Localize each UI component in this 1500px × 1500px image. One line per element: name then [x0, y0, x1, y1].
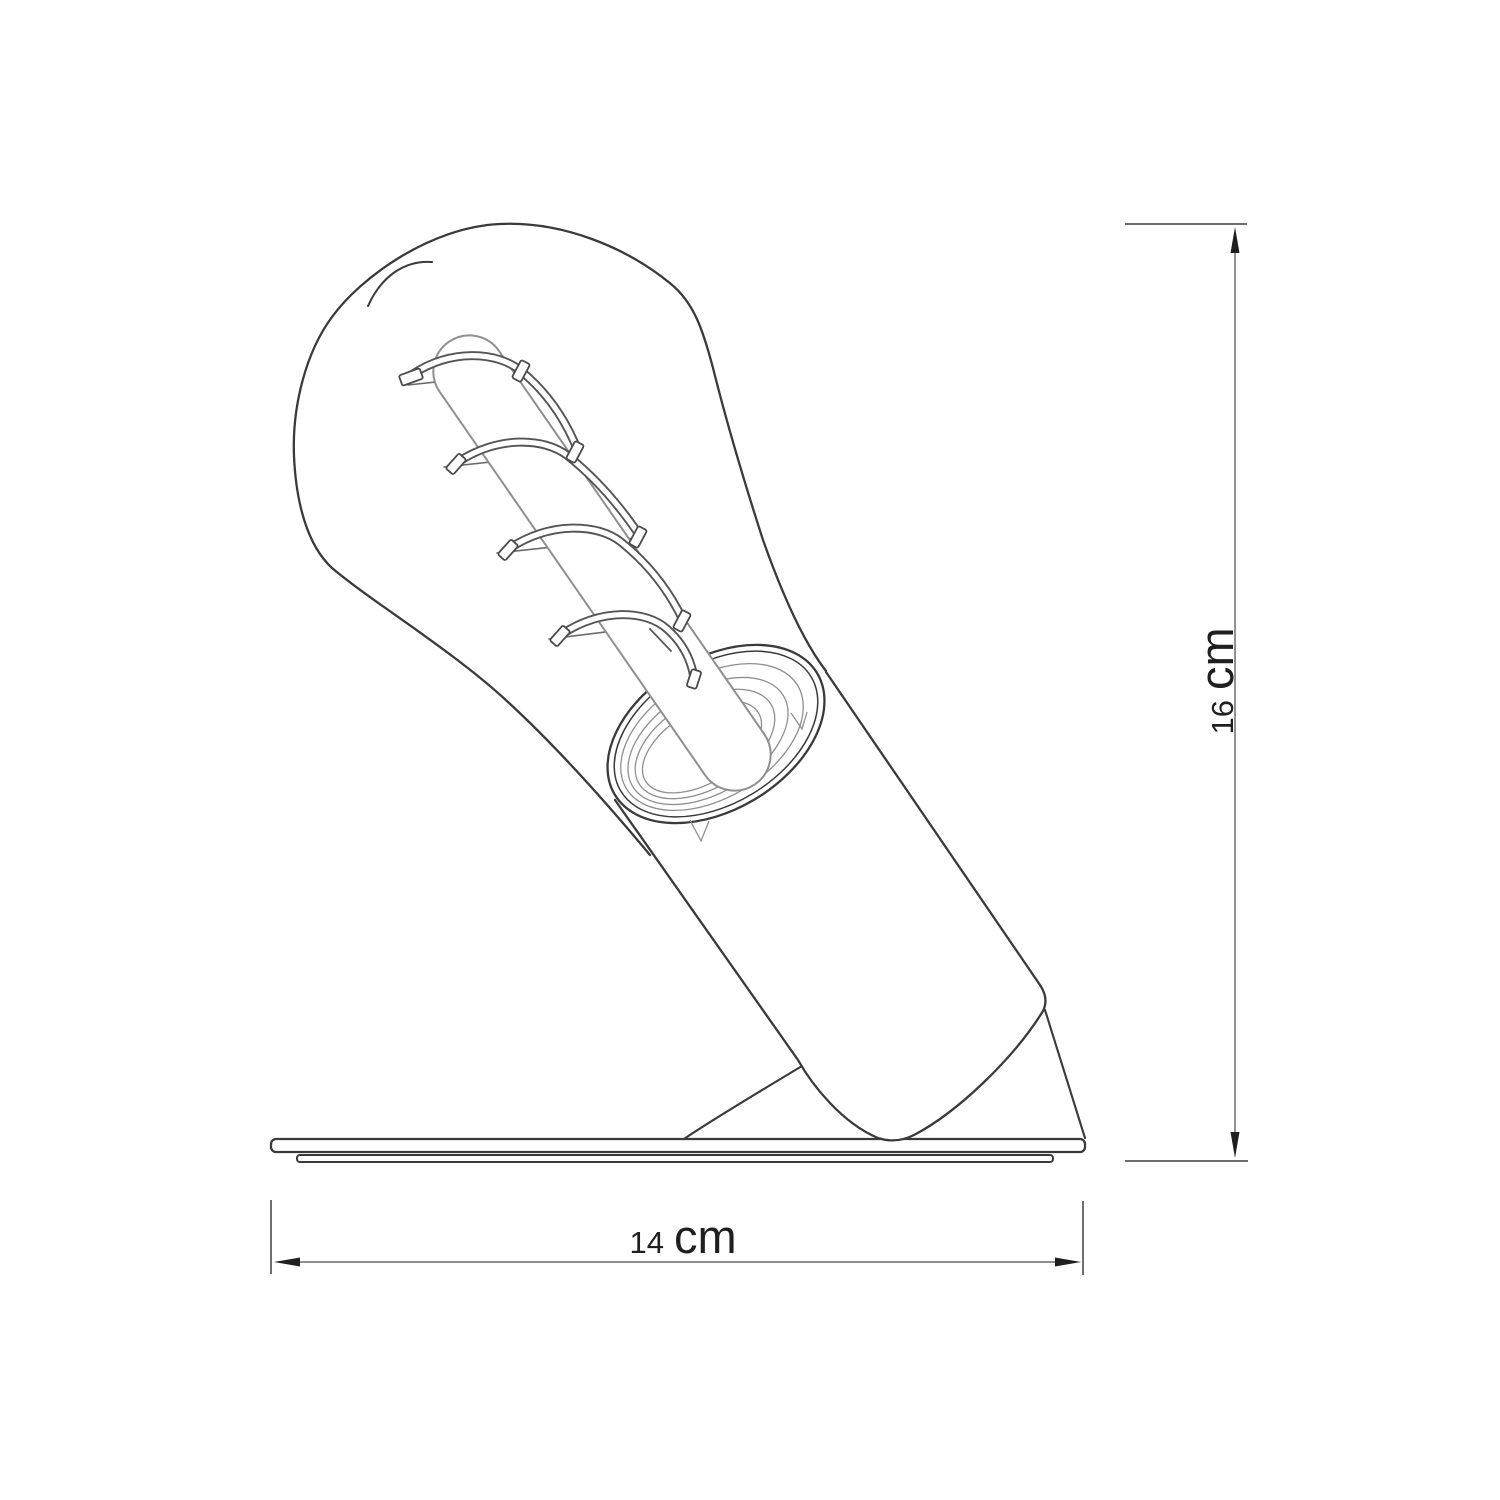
- width-value: 14: [630, 1225, 664, 1260]
- width-dimension-label: 14 cm: [630, 1210, 737, 1263]
- wedge-left-edge: [684, 1066, 802, 1139]
- holder-cylinder: [615, 672, 1045, 1140]
- arrow-left-icon: [274, 1258, 300, 1267]
- base-plate-lower: [297, 1155, 1053, 1162]
- lamp-technical-drawing: 16 cm 14 cm: [0, 0, 1500, 1500]
- arrow-up-icon: [1231, 227, 1240, 253]
- width-dimension: 14 cm: [271, 1200, 1083, 1275]
- arrow-right-icon: [1055, 1258, 1081, 1267]
- stem-capsule-body: [419, 321, 784, 804]
- filament-clip-r2: [566, 441, 584, 463]
- bulb-highlight-arc: [368, 262, 432, 306]
- wedge-right-edge: [1045, 1010, 1085, 1138]
- base-plate-upper: [271, 1139, 1085, 1152]
- width-unit: cm: [674, 1210, 737, 1263]
- height-unit: cm: [1190, 627, 1243, 690]
- height-dimension-label: 16 cm: [1190, 627, 1243, 734]
- base-plate: [271, 1139, 1085, 1162]
- stem-capsule: [419, 321, 784, 804]
- height-dimension: 16 cm: [1125, 224, 1248, 1161]
- filament-clip-l4: [550, 625, 571, 647]
- cylinder-body-fill: [615, 672, 1045, 1140]
- filament-clip-l2: [446, 453, 467, 475]
- filament-clip-l3: [498, 539, 519, 561]
- height-value: 16: [1205, 700, 1240, 734]
- arrow-down-icon: [1231, 1132, 1240, 1158]
- technical-drawing-page: 16 cm 14 cm: [0, 0, 1500, 1500]
